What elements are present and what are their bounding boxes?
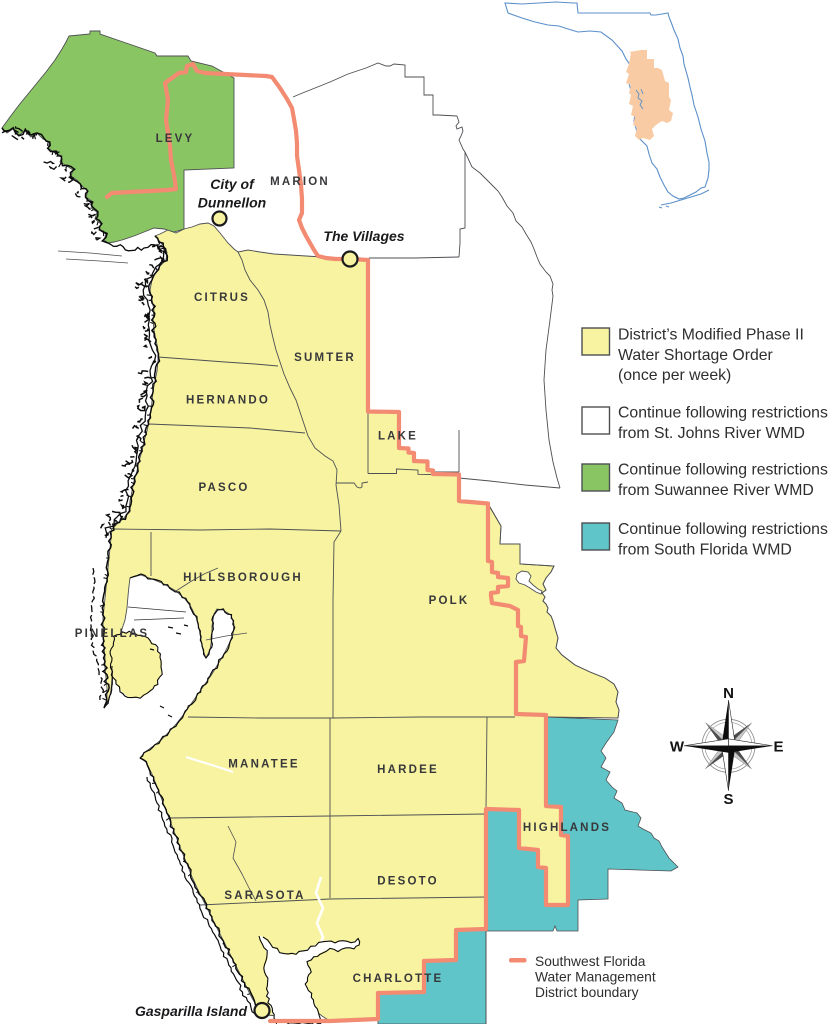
svg-text:Southwest Florida: Southwest Florida — [535, 954, 646, 969]
svg-text:W: W — [670, 739, 685, 756]
svg-text:District boundary: District boundary — [535, 985, 639, 1000]
svg-text:The Villages: The Villages — [323, 228, 404, 244]
svg-text:CITRUS: CITRUS — [194, 292, 250, 304]
svg-text:E: E — [773, 739, 783, 756]
svg-text:MARION: MARION — [270, 176, 330, 188]
svg-text:HIGHLANDS: HIGHLANDS — [523, 822, 611, 834]
svg-text:(once per week): (once per week) — [618, 367, 731, 384]
svg-text:District’s Modified Phase II: District’s Modified Phase II — [618, 327, 804, 344]
svg-text:CHARLOTTE: CHARLOTTE — [353, 973, 444, 985]
svg-text:Water Shortage Order: Water Shortage Order — [618, 347, 773, 364]
svg-text:MANATEE: MANATEE — [228, 759, 299, 771]
svg-text:Continue following restriction: Continue following restrictions — [618, 462, 828, 479]
svg-text:N: N — [723, 685, 734, 702]
svg-text:HILLSBOROUGH: HILLSBOROUGH — [183, 572, 303, 584]
svg-text:HARDEE: HARDEE — [377, 764, 439, 776]
svg-text:DESOTO: DESOTO — [377, 876, 439, 888]
svg-text:from South Florida WMD: from South Florida WMD — [618, 542, 792, 559]
svg-text:Dunnellon: Dunnellon — [198, 195, 266, 211]
svg-text:S: S — [723, 791, 733, 808]
svg-text:LAKE: LAKE — [378, 431, 418, 443]
svg-text:PASCO: PASCO — [198, 482, 249, 494]
svg-text:Water Management: Water Management — [535, 970, 656, 985]
svg-text:LEVY: LEVY — [156, 133, 195, 145]
svg-text:PINELLAS: PINELLAS — [75, 628, 149, 640]
svg-text:City of: City of — [210, 176, 255, 192]
svg-text:Continue following restriction: Continue following restrictions — [618, 521, 828, 538]
svg-text:from St. Johns River WMD: from St. Johns River WMD — [618, 425, 805, 442]
svg-text:SARASOTA: SARASOTA — [224, 890, 305, 902]
svg-text:SUMTER: SUMTER — [294, 352, 356, 364]
svg-text:from Suwannee River WMD: from Suwannee River WMD — [618, 482, 814, 499]
svg-text:Gasparilla Island: Gasparilla Island — [135, 1003, 247, 1019]
svg-text:Continue following restriction: Continue following restrictions — [618, 405, 828, 422]
svg-text:HERNANDO: HERNANDO — [186, 395, 270, 407]
svg-text:POLK: POLK — [429, 595, 470, 607]
